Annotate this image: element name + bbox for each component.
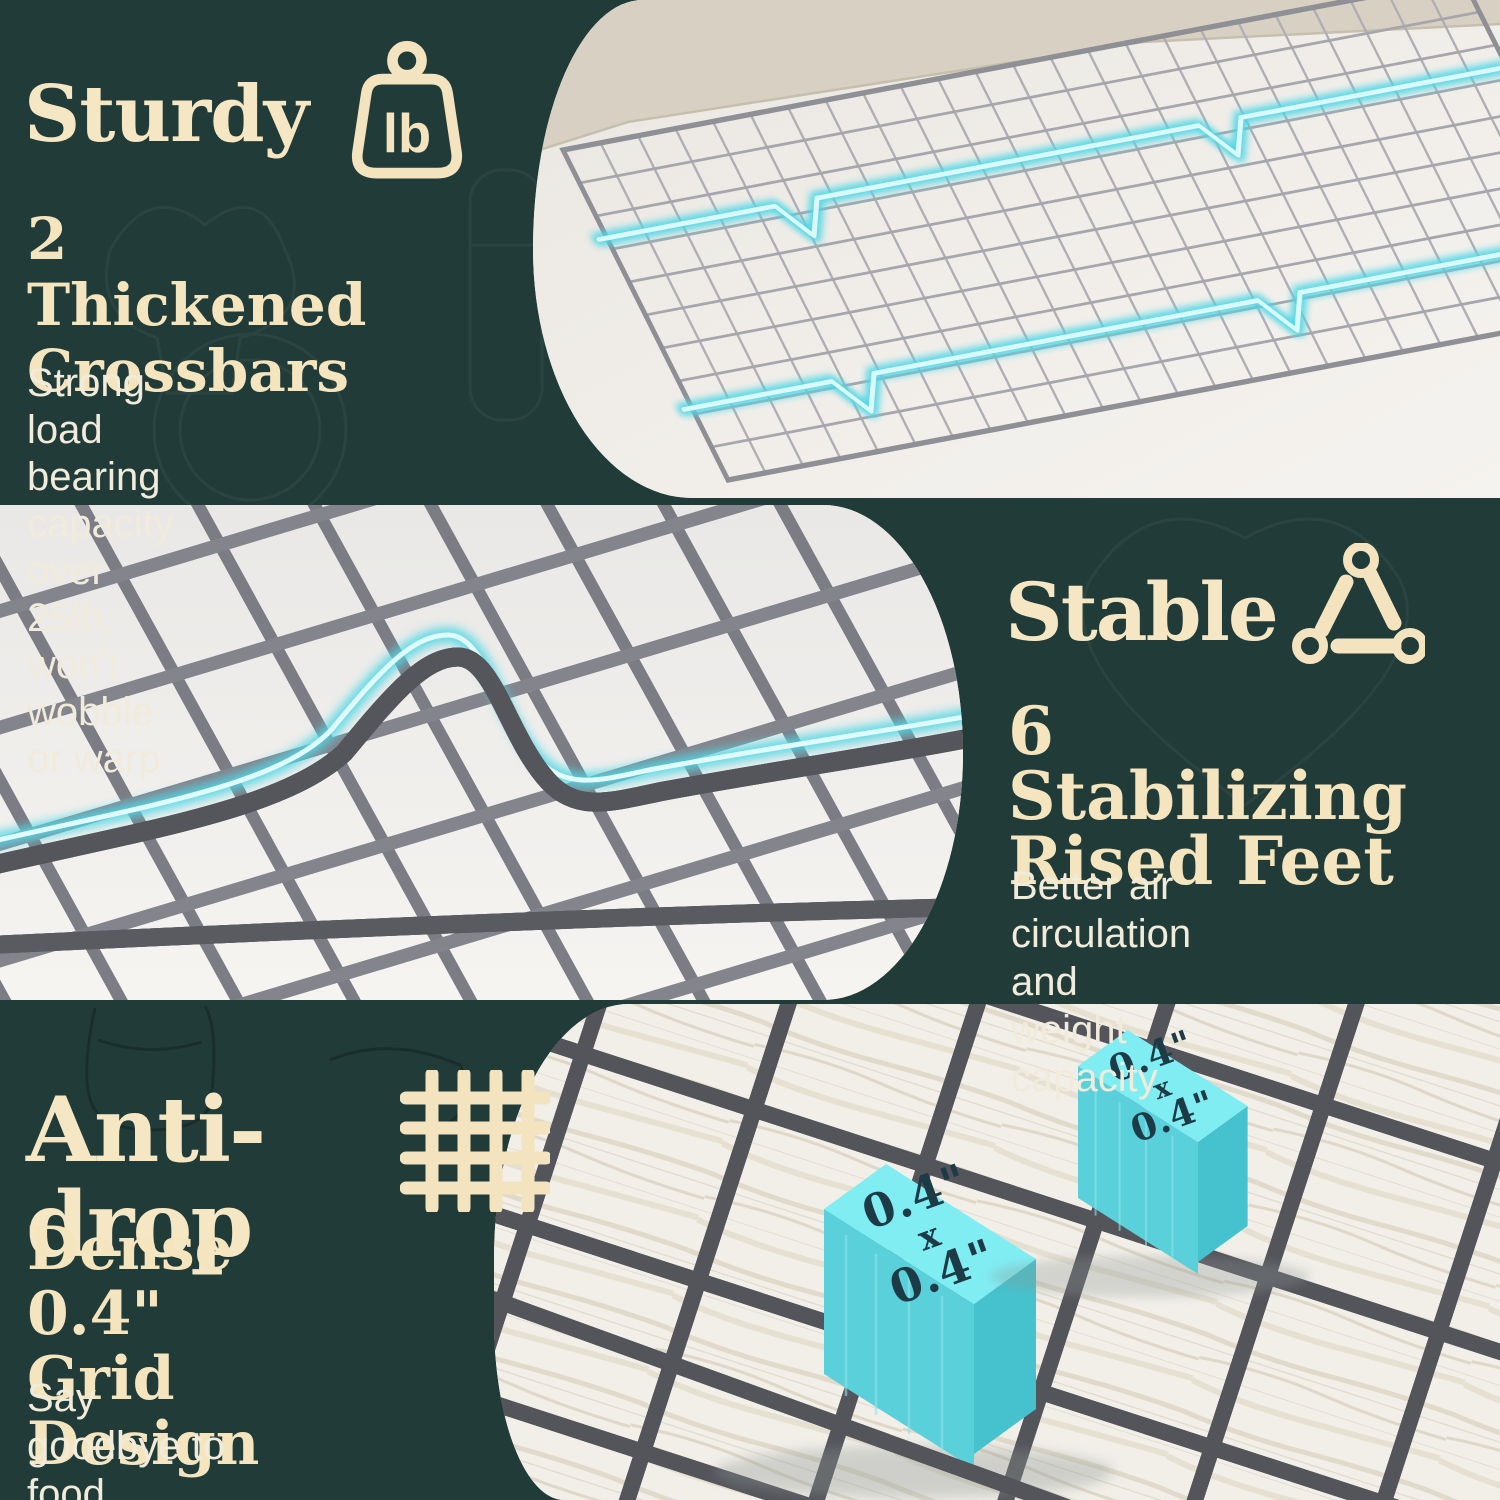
glass-doodle-line: [98, 1040, 202, 1050]
sturdy-body: Strong load bearing capacity over 25lb, …: [27, 360, 174, 783]
stable-body-line2: weight capacity: [1011, 1006, 1191, 1102]
antidrop-body: Say goodbye to food falling or deformati…: [27, 1374, 238, 1500]
triangle-arm-left: [1322, 582, 1346, 630]
triangle-arm-right: [1370, 574, 1394, 623]
bottle-doodle: [470, 170, 542, 420]
sturdy-title: Sturdy: [24, 74, 308, 156]
cube-shadow: [990, 1256, 1310, 1298]
photo-grid-cubes: 0.4" x 0.4" 0.4" x 0.4": [494, 1004, 1500, 1500]
photo-grid-cubes-svg: 0.4" x 0.4" 0.4" x 0.4": [494, 1004, 1500, 1500]
antidrop-subtitle-line1: Dense 0.4": [27, 1217, 259, 1347]
product-feature-infographic: 0.4" x 0.4" 0.4" x 0.4": [0, 0, 1500, 1500]
photo-rack-crossbars: [533, 0, 1500, 498]
stable-body: Better air circulation and weight capaci…: [1011, 862, 1191, 1102]
weight-handle-ring: [392, 46, 421, 75]
sturdy-body-line2: over 25lb, won't wobble or warp: [27, 548, 174, 783]
weight-lb-text: lb: [383, 103, 431, 164]
stability-triangle-icon: [1291, 543, 1425, 667]
stable-title: Stable: [1005, 570, 1277, 654]
stable-body-line1: Better air circulation and: [1011, 862, 1191, 1006]
sturdy-body-line1: Strong load bearing capacity: [27, 360, 174, 548]
weight-lb-icon: lb: [344, 40, 470, 188]
photo-rack-crossbars-svg: [533, 0, 1500, 498]
grid-mesh-icon: [400, 1070, 550, 1212]
sturdy-subtitle-line1: 2 Thickened: [27, 206, 366, 338]
antidrop-body-line1: Say goodbye to food: [27, 1374, 238, 1500]
stable-subtitle-line1: 6 Stabilizing: [1008, 699, 1407, 829]
